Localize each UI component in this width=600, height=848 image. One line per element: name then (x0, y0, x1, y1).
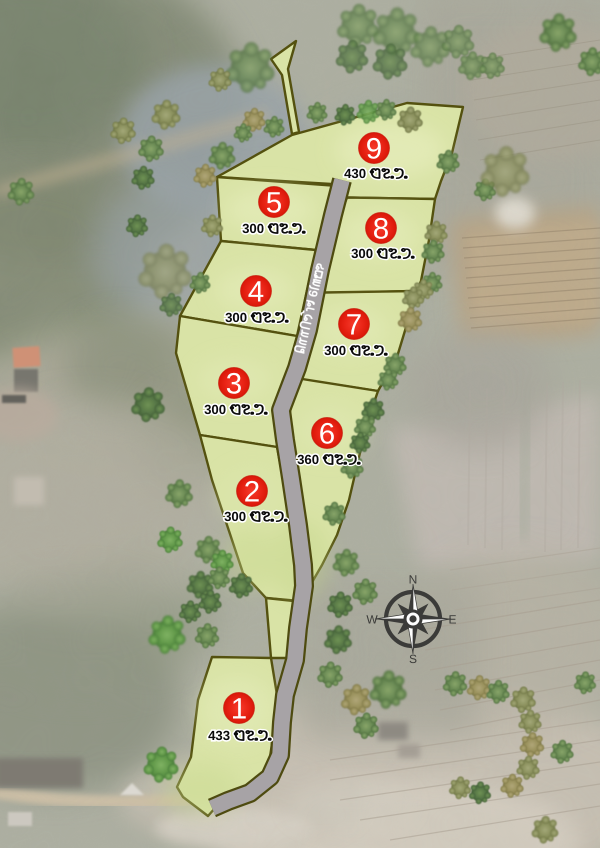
svg-text:W: W (366, 613, 378, 627)
svg-text:9: 9 (366, 133, 382, 166)
svg-text:S: S (409, 652, 417, 666)
svg-text:7: 7 (346, 309, 362, 342)
svg-text:360: 360 (297, 452, 319, 467)
svg-text:300: 300 (204, 402, 226, 417)
svg-text:300: 300 (224, 509, 246, 524)
svg-text:4: 4 (248, 276, 264, 309)
svg-text:300: 300 (351, 246, 373, 261)
svg-text:3: 3 (226, 368, 242, 401)
svg-text:8: 8 (373, 213, 389, 246)
svg-text:300: 300 (324, 343, 346, 358)
svg-text:2: 2 (244, 476, 260, 509)
svg-text:1: 1 (231, 693, 247, 726)
svg-text:300: 300 (225, 310, 247, 325)
svg-text:E: E (448, 613, 456, 627)
svg-text:300: 300 (242, 221, 264, 236)
svg-text:N: N (409, 573, 418, 587)
svg-text:433: 433 (208, 728, 230, 743)
svg-text:6: 6 (319, 418, 335, 451)
svg-text:430: 430 (344, 166, 366, 181)
svg-text:5: 5 (266, 187, 282, 220)
